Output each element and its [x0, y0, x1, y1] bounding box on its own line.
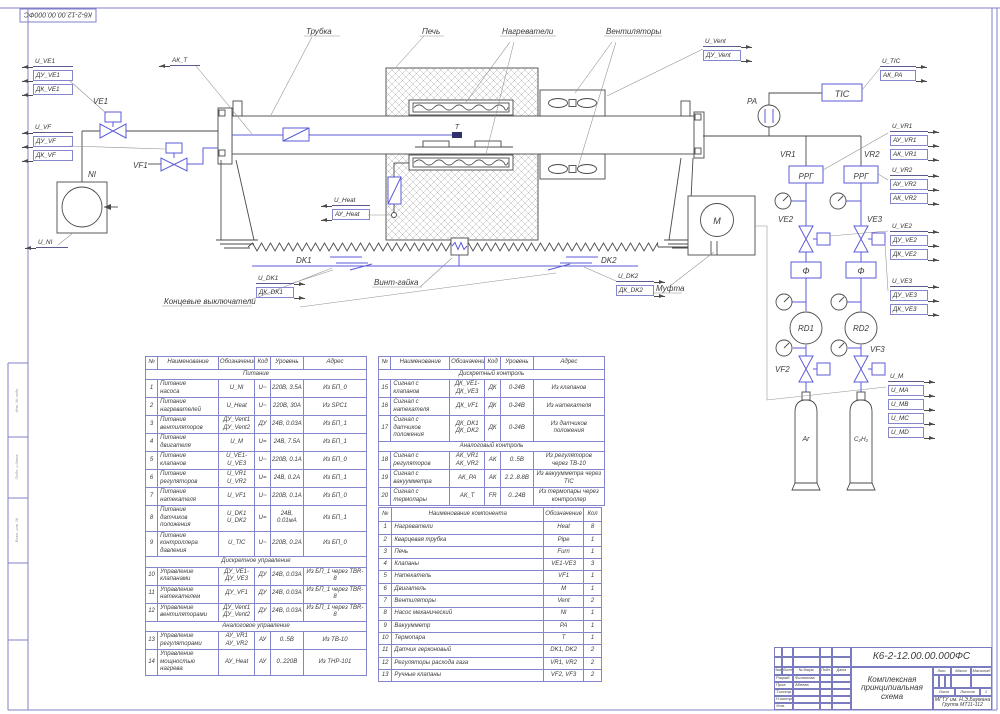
table-cell: 11	[146, 585, 158, 603]
signal-row: U_MC	[888, 413, 924, 424]
components-table: №Наименование компонентаОбозначениеКол1Н…	[378, 507, 602, 682]
table-cell: U_Heat	[218, 398, 254, 416]
table-cell: 8	[584, 522, 602, 534]
vf3-tag: VF3	[870, 345, 885, 354]
signal-arrow-icon	[928, 160, 939, 161]
table-cell: 4	[146, 434, 158, 452]
table-cell: Из БП_1	[303, 470, 366, 488]
rev-header: Изм.	[774, 667, 782, 675]
table-cell: Из БП_1	[303, 416, 366, 434]
vr1-tag: VR1	[780, 150, 796, 159]
signal-label: АК_VR1	[890, 149, 928, 160]
table-section-title: Дискретный контроль	[379, 369, 605, 380]
title-block-cell	[832, 703, 851, 710]
table-cell: 1	[379, 522, 392, 534]
signal-arrow-icon	[928, 204, 939, 205]
table-cell: 1	[584, 608, 602, 620]
title-block-cell	[820, 657, 832, 667]
rrg2-tag: РРГ	[853, 172, 869, 181]
table-cell: Вакуумметр	[392, 620, 544, 632]
table-header-cell: Наименование компонента	[392, 508, 544, 522]
sheet-label: Лист	[933, 688, 955, 696]
table-cell: U_VE1- U_VE3	[218, 452, 254, 470]
pa-tag: PA	[747, 97, 757, 106]
valve-ve2	[799, 226, 830, 252]
signal-label: АК_РА	[880, 70, 916, 81]
table-section-title: Аналоговое управление	[146, 621, 367, 632]
table-cell: VF1	[544, 571, 584, 583]
signal-arrow-icon	[741, 61, 752, 62]
signal-row: U_TIC	[880, 57, 916, 67]
signal-arrow-icon	[22, 133, 33, 134]
signal-row: АК_Т	[170, 56, 200, 66]
filter2-tag: Ф	[857, 266, 864, 276]
rd2-tag: RD2	[853, 324, 870, 333]
signal-block-akt: АК_Т	[170, 56, 200, 69]
signal-row: ДК_VF	[33, 150, 73, 161]
signal-block-ni: U_NI	[36, 238, 68, 251]
table-header-cell: Наименование	[158, 357, 219, 370]
signal-label: ДУ_VE1	[33, 70, 73, 81]
signal-row: ДК_DK1	[256, 287, 294, 298]
signal-block-ve1: U_VE1ДУ_VE1ДК_VE1	[33, 57, 73, 98]
signal-arrow-icon	[924, 382, 935, 383]
signal-arrow-icon	[928, 246, 939, 247]
table-cell: Питание регуляторов	[158, 470, 219, 488]
fans-label: Вентиляторы	[606, 27, 662, 36]
signal-arrow-icon	[22, 81, 33, 82]
signal-row: U_DK2	[616, 272, 654, 282]
valve-ve1	[100, 112, 126, 138]
sheets-count: 1	[980, 688, 992, 696]
signal-arrow-icon	[294, 298, 305, 299]
title-block-cell	[832, 696, 851, 703]
table-header-cell: Кол	[584, 508, 602, 522]
table-cell: АУ	[255, 650, 270, 676]
vacuum-pump	[57, 182, 118, 233]
reed-switch-dk2	[548, 257, 598, 270]
table-cell: Из БП_1 через TBR-8	[303, 603, 366, 621]
table-cell: 0-24В	[501, 398, 534, 416]
table-cell: Питание натекателя	[158, 488, 219, 506]
signal-label: U_DK1	[256, 274, 294, 284]
cylinder-acetylene: С₂Н₂	[847, 392, 875, 490]
table-cell: 24В, 0.2А	[270, 470, 303, 488]
table-cell: ДУ_VF1	[218, 585, 254, 603]
table-cell: Печь	[392, 546, 544, 558]
role-name	[793, 703, 820, 710]
table-cell: VF2, VF3	[544, 669, 584, 681]
table-cell: Питание вентиляторов	[158, 416, 219, 434]
margin-label: Взам. инв. №	[14, 517, 19, 542]
table-cell: АК	[485, 470, 501, 488]
rrg1-tag: РРГ	[798, 172, 814, 181]
table-cell: Питание датчиков положения	[158, 506, 219, 532]
table-cell: 10	[379, 632, 392, 644]
table-cell: Сигнал с натекателя	[391, 398, 450, 416]
table-cell: 6	[146, 470, 158, 488]
table-cell: Furn	[544, 546, 584, 558]
signal-label: U_VF	[33, 123, 73, 133]
tube-label: Трубка	[306, 27, 332, 36]
signal-row: U_MD	[888, 427, 924, 438]
table-cell: ДК	[485, 416, 501, 442]
table-cell: Из натекателя	[533, 398, 604, 416]
coupling-label: Муфта	[656, 284, 685, 293]
signal-arrow-icon	[924, 396, 935, 397]
signal-label: ДК_VE3	[890, 304, 928, 315]
vr2-tag: VR2	[864, 150, 880, 159]
signal-label: U_DK2	[616, 272, 654, 282]
role-name: Филатова	[793, 675, 820, 682]
signal-label: ДУ_VE2	[890, 235, 928, 246]
signal-block-m: U_MU_MAU_MBU_MCU_MD	[888, 372, 924, 441]
thermocouple-tag: T	[455, 124, 460, 131]
table-cell: ДУ	[255, 416, 270, 434]
table-cell: Управление вентиляторами	[158, 603, 219, 621]
signal-row: U_VE2	[890, 222, 928, 232]
table-cell: 15	[379, 380, 391, 398]
ve1-tag: VE1	[93, 97, 108, 106]
signal-arrow-icon	[928, 232, 939, 233]
table-header-cell: Обозначение	[218, 357, 254, 370]
signal-arrow-icon	[916, 67, 927, 68]
signal-block-tic: U_TICАК_РА	[880, 57, 916, 84]
signal-label: U_VR2	[890, 166, 928, 176]
table-cell: 0..5В	[270, 632, 303, 650]
table-cell: VE1-VE3	[544, 559, 584, 571]
table-cell: U_TIC	[218, 531, 254, 557]
table-cell: 1	[584, 583, 602, 595]
ve2-tag: VE2	[778, 215, 794, 224]
signal-block-dk2: U_DK2ДК_DK2	[616, 272, 654, 299]
signal-label: ДК_DK2	[616, 285, 654, 296]
signal-arrow-icon	[321, 206, 332, 207]
title-block-cell	[782, 647, 793, 657]
role-label: Пров.	[774, 682, 793, 689]
signal-label: ДУ_VE3	[890, 290, 928, 301]
table-cell: 24В, 0.03А	[270, 585, 303, 603]
valve-vf3	[854, 356, 885, 382]
table-cell: 2	[379, 534, 392, 546]
table-cell: 5	[379, 571, 392, 583]
signal-row: U_VE1	[33, 57, 73, 67]
table-cell: Питание контроллера давления	[158, 531, 219, 557]
table-cell: U~	[255, 488, 270, 506]
signal-block-ve3: U_VE3ДУ_VE3ДК_VE3	[890, 277, 928, 318]
signal-arrow-icon	[928, 146, 939, 147]
table-header-cell: Обозначение	[544, 508, 584, 522]
rev-header: Подп.	[820, 667, 832, 675]
components-table-container: №Наименование компонентаОбозначениеКол1Н…	[378, 507, 602, 682]
signal-label: U_M	[888, 372, 924, 382]
table-cell: Нагреватели	[392, 522, 544, 534]
limit-switches-label: Концевые выключатели	[164, 297, 256, 306]
signal-arrow-icon	[928, 132, 939, 133]
table-cell: 4	[379, 559, 392, 571]
table-cell: PA	[544, 620, 584, 632]
signal-label: U_Vent	[703, 37, 741, 47]
table-cell: DK1, DK2	[544, 645, 584, 657]
table-cell: ДУ	[255, 603, 270, 621]
table-cell: U_M	[218, 434, 254, 452]
title-block-cell	[832, 647, 851, 657]
table-cell: 19	[379, 470, 391, 488]
signal-label: U_NI	[36, 238, 68, 248]
signal-label: U_TIC	[880, 57, 916, 67]
table-cell: АУ_Heat	[218, 650, 254, 676]
signal-arrow-icon	[159, 66, 170, 67]
rev-header: Дата	[832, 667, 851, 675]
table-cell: Насос механический	[392, 608, 544, 620]
table-cell: 24В, 0.03А	[270, 416, 303, 434]
table-cell: ДК_DK1 ДК_DK2	[450, 416, 485, 442]
table-cell: Двигатель	[392, 583, 544, 595]
title-block-cell	[774, 647, 782, 657]
table-cell: 3	[146, 416, 158, 434]
table-cell: 0..24В	[501, 488, 534, 506]
signal-row: АУ_VR2	[890, 179, 928, 190]
filters: Ф Ф	[791, 262, 876, 278]
table-cell: 0..220В	[270, 650, 303, 676]
table-cell: 20	[379, 488, 391, 506]
signal-arrow-icon	[654, 296, 665, 297]
signal-arrow-icon	[928, 176, 939, 177]
signal-arrow-icon	[924, 424, 935, 425]
table-cell: Из ТВ-10	[303, 632, 366, 650]
table-cell: Из БП_0	[303, 531, 366, 557]
table-cell: U=	[255, 434, 270, 452]
monitoring-table-container: №НаименованиеОбозначениеКодУровеньАдресД…	[378, 356, 605, 506]
signal-row: АК_VR1	[890, 149, 928, 160]
signal-arrow-icon	[321, 220, 332, 221]
org-name: МГТУ им. Н.Э.БауманаГруппа МТ11-112	[933, 696, 992, 710]
table-header-cell: Адрес	[533, 357, 604, 370]
table-cell: Из ТНР-101	[303, 650, 366, 676]
signal-arrow-icon	[916, 81, 927, 82]
margin-label: Инв. № подл.	[14, 388, 19, 413]
table-cell: Из БП_1 через TBR-8	[303, 567, 366, 585]
role-label: Утв.	[774, 703, 793, 710]
io-table-container: №НаименованиеОбозначениеКодУровеньАдресП…	[145, 356, 367, 676]
table-cell: 220В, 0.2А	[270, 531, 303, 557]
title-block-cell	[820, 647, 832, 657]
table-cell: ДУ_VE1- ДУ_VE3	[218, 567, 254, 585]
ve3-tag: VE3	[867, 215, 883, 224]
table-cell: Из клапанов	[533, 380, 604, 398]
table-cell: ДУ	[255, 567, 270, 585]
mass-header: Масса	[951, 667, 971, 675]
table-cell: M	[544, 583, 584, 595]
signal-label: АУ_VR2	[890, 179, 928, 190]
table-cell: Питание нагревателей	[158, 398, 219, 416]
signal-label: U_VE3	[890, 277, 928, 287]
signal-label: U_MA	[888, 385, 924, 396]
signal-block-ve2: U_VE2ДУ_VE2ДК_VE2	[890, 222, 928, 263]
signal-label: ДК_VE1	[33, 84, 73, 95]
rd1-tag: RD1	[798, 324, 814, 333]
role-label: Т.контр.	[774, 689, 793, 696]
table-cell: Из БП_0	[303, 488, 366, 506]
table-header-cell: Обозначение	[450, 357, 485, 370]
signal-label: ДК_VE2	[890, 249, 928, 260]
lit-header: Лит.	[933, 667, 951, 675]
heater-bottom	[409, 155, 513, 170]
table-cell: 24В, 0.03А	[270, 567, 303, 585]
vf2-tag: VF2	[775, 365, 790, 374]
table-cell: ДК	[485, 380, 501, 398]
scale-header: Масштаб	[971, 667, 992, 675]
table-cell: 24В, 0.01мА	[270, 506, 303, 532]
dk2-tag: DK2	[601, 256, 617, 265]
table-cell: ДУ_Vent1 ДУ_Vent2	[218, 416, 254, 434]
table-header-cell: №	[379, 357, 391, 370]
table-cell: U~	[255, 380, 270, 398]
table-cell: 9	[146, 531, 158, 557]
doc-title: Комплекснаяпринципиальная схема	[851, 667, 933, 710]
title-block-cell	[971, 675, 992, 688]
signal-block-vr1: U_VR1АУ_VR1АК_VR1	[890, 122, 928, 163]
signal-row: АК_РА	[880, 70, 916, 81]
table-cell: U_VF1	[218, 488, 254, 506]
signal-arrow-icon	[928, 190, 939, 191]
table-header-cell: Уровень	[270, 357, 303, 370]
role-name	[793, 696, 820, 703]
heaters-label: Нагреватели	[502, 27, 554, 36]
table-cell: Из датчиков положения	[533, 416, 604, 442]
table-cell: Управление клапанами	[158, 567, 219, 585]
table-cell: Сигнал с датчиков положения	[391, 416, 450, 442]
signal-label: ДУ_Vent	[703, 50, 741, 61]
table-cell: 1	[584, 534, 602, 546]
vf1-tag: VF1	[133, 161, 148, 170]
signal-row: U_VR1	[890, 122, 928, 132]
table-cell: Из SPC1	[303, 398, 366, 416]
table-cell: 2	[584, 596, 602, 608]
title-block-cell	[782, 657, 793, 667]
valve-ve3	[854, 226, 885, 252]
title-block-cell	[820, 689, 832, 696]
doc-number: К6-2-12.00.00.000ФС	[851, 647, 992, 667]
table-cell: Сигнал с клапанов	[391, 380, 450, 398]
table-cell: U~	[255, 398, 270, 416]
table-cell: ДК_VF1	[450, 398, 485, 416]
table-cell: Датчик герконовый	[392, 645, 544, 657]
signal-arrow-icon	[741, 47, 752, 48]
table-cell: АК_Т	[450, 488, 485, 506]
table-cell: 14	[146, 650, 158, 676]
signal-row: ДК_VE2	[890, 249, 928, 260]
table-cell: Сигнал с регуляторов	[391, 452, 450, 470]
table-cell: FR	[485, 488, 501, 506]
table-cell: Vent	[544, 596, 584, 608]
table-cell: 1	[584, 571, 602, 583]
signal-row: U_Vent	[703, 37, 741, 47]
table-cell: 12	[146, 603, 158, 621]
table-header-cell: №	[146, 357, 158, 370]
table-cell: ДК	[485, 398, 501, 416]
drawing-sheet: Инв. № подл. Подп. и дата Взам. инв. № К…	[0, 0, 1000, 714]
role-label: Разраб.	[774, 675, 793, 682]
signal-label: U_MD	[888, 427, 924, 438]
table-cell: Натекатель	[392, 571, 544, 583]
title-block-cell	[774, 657, 782, 667]
table-cell: Из БП_1	[303, 506, 366, 532]
table-cell: АК_VR1 АК_VR2	[450, 452, 485, 470]
table-cell: 24В, 7.5А	[270, 434, 303, 452]
signal-label: U_VE1	[33, 57, 73, 67]
title-block-cell	[820, 703, 832, 710]
valve-vf1	[161, 143, 187, 171]
table-cell: 0-24В	[501, 416, 534, 442]
signal-row: ДУ_VE3	[890, 290, 928, 301]
table-cell: Pipe	[544, 534, 584, 546]
signal-label: АК_Т	[170, 56, 200, 66]
table-cell: Из БП_1	[303, 434, 366, 452]
margin-label: Подп. и дата	[14, 454, 19, 480]
signal-row: U_MA	[888, 385, 924, 396]
title-block-cell	[820, 682, 832, 689]
table-section-title: Аналоговый контроль	[379, 441, 605, 452]
signal-label: U_MC	[888, 413, 924, 424]
monitoring-table: №НаименованиеОбозначениеКодУровеньАдресД…	[378, 356, 605, 506]
table-cell: Из термопары через контроллер	[533, 488, 604, 506]
signal-row: ДК_DK2	[616, 285, 654, 296]
signal-label: АК_VR2	[890, 193, 928, 204]
table-header-cell: Код	[485, 357, 501, 370]
table-cell: АУ	[255, 632, 270, 650]
dk1-tag: DK1	[296, 256, 312, 265]
signal-row: U_MB	[888, 399, 924, 410]
table-cell: Из БП_0	[303, 380, 366, 398]
signal-arrow-icon	[654, 282, 665, 283]
title-block-cell	[832, 689, 851, 696]
signal-block-vr2: U_VR2АУ_VR2АК_VR2	[890, 166, 928, 207]
ni-tag: NI	[88, 170, 97, 179]
signal-arrow-icon	[22, 147, 33, 148]
io-table: №НаименованиеОбозначениеКодУровеньАдресП…	[145, 356, 367, 676]
table-cell: 16	[379, 398, 391, 416]
title-block-cell	[832, 657, 851, 667]
signal-block-heat: U_HeatАУ_Heat	[332, 196, 370, 223]
table-cell: 24В, 0.03А	[270, 603, 303, 621]
table-cell: 2.2..8.8В	[501, 470, 534, 488]
reed-switch-dk1	[330, 257, 372, 270]
signal-arrow-icon	[22, 161, 33, 162]
table-cell: Питание двигателя	[158, 434, 219, 452]
signal-row: ДУ_VE2	[890, 235, 928, 246]
rev-header: № докум.	[793, 667, 820, 675]
table-cell: 7	[379, 596, 392, 608]
argon-tag: Ar	[802, 436, 811, 443]
table-cell: Из БП_0	[303, 452, 366, 470]
signal-row: U_M	[888, 372, 924, 382]
table-cell: 18	[379, 452, 391, 470]
cylinder-argon: Ar	[792, 392, 820, 490]
table-cell: 3	[379, 546, 392, 558]
signal-label: ДК_DK1	[256, 287, 294, 298]
signal-row: U_VF	[33, 123, 73, 133]
table-cell: U=	[255, 506, 270, 532]
furnace-label: Печь	[422, 27, 440, 36]
table-cell: U_NI	[218, 380, 254, 398]
signal-row: АУ_Heat	[332, 209, 370, 220]
table-cell: 2	[584, 669, 602, 681]
signal-label: ДК_VF	[33, 150, 73, 161]
table-cell: 13	[146, 632, 158, 650]
table-cell: АК	[485, 452, 501, 470]
signal-arrow-icon	[294, 284, 305, 285]
